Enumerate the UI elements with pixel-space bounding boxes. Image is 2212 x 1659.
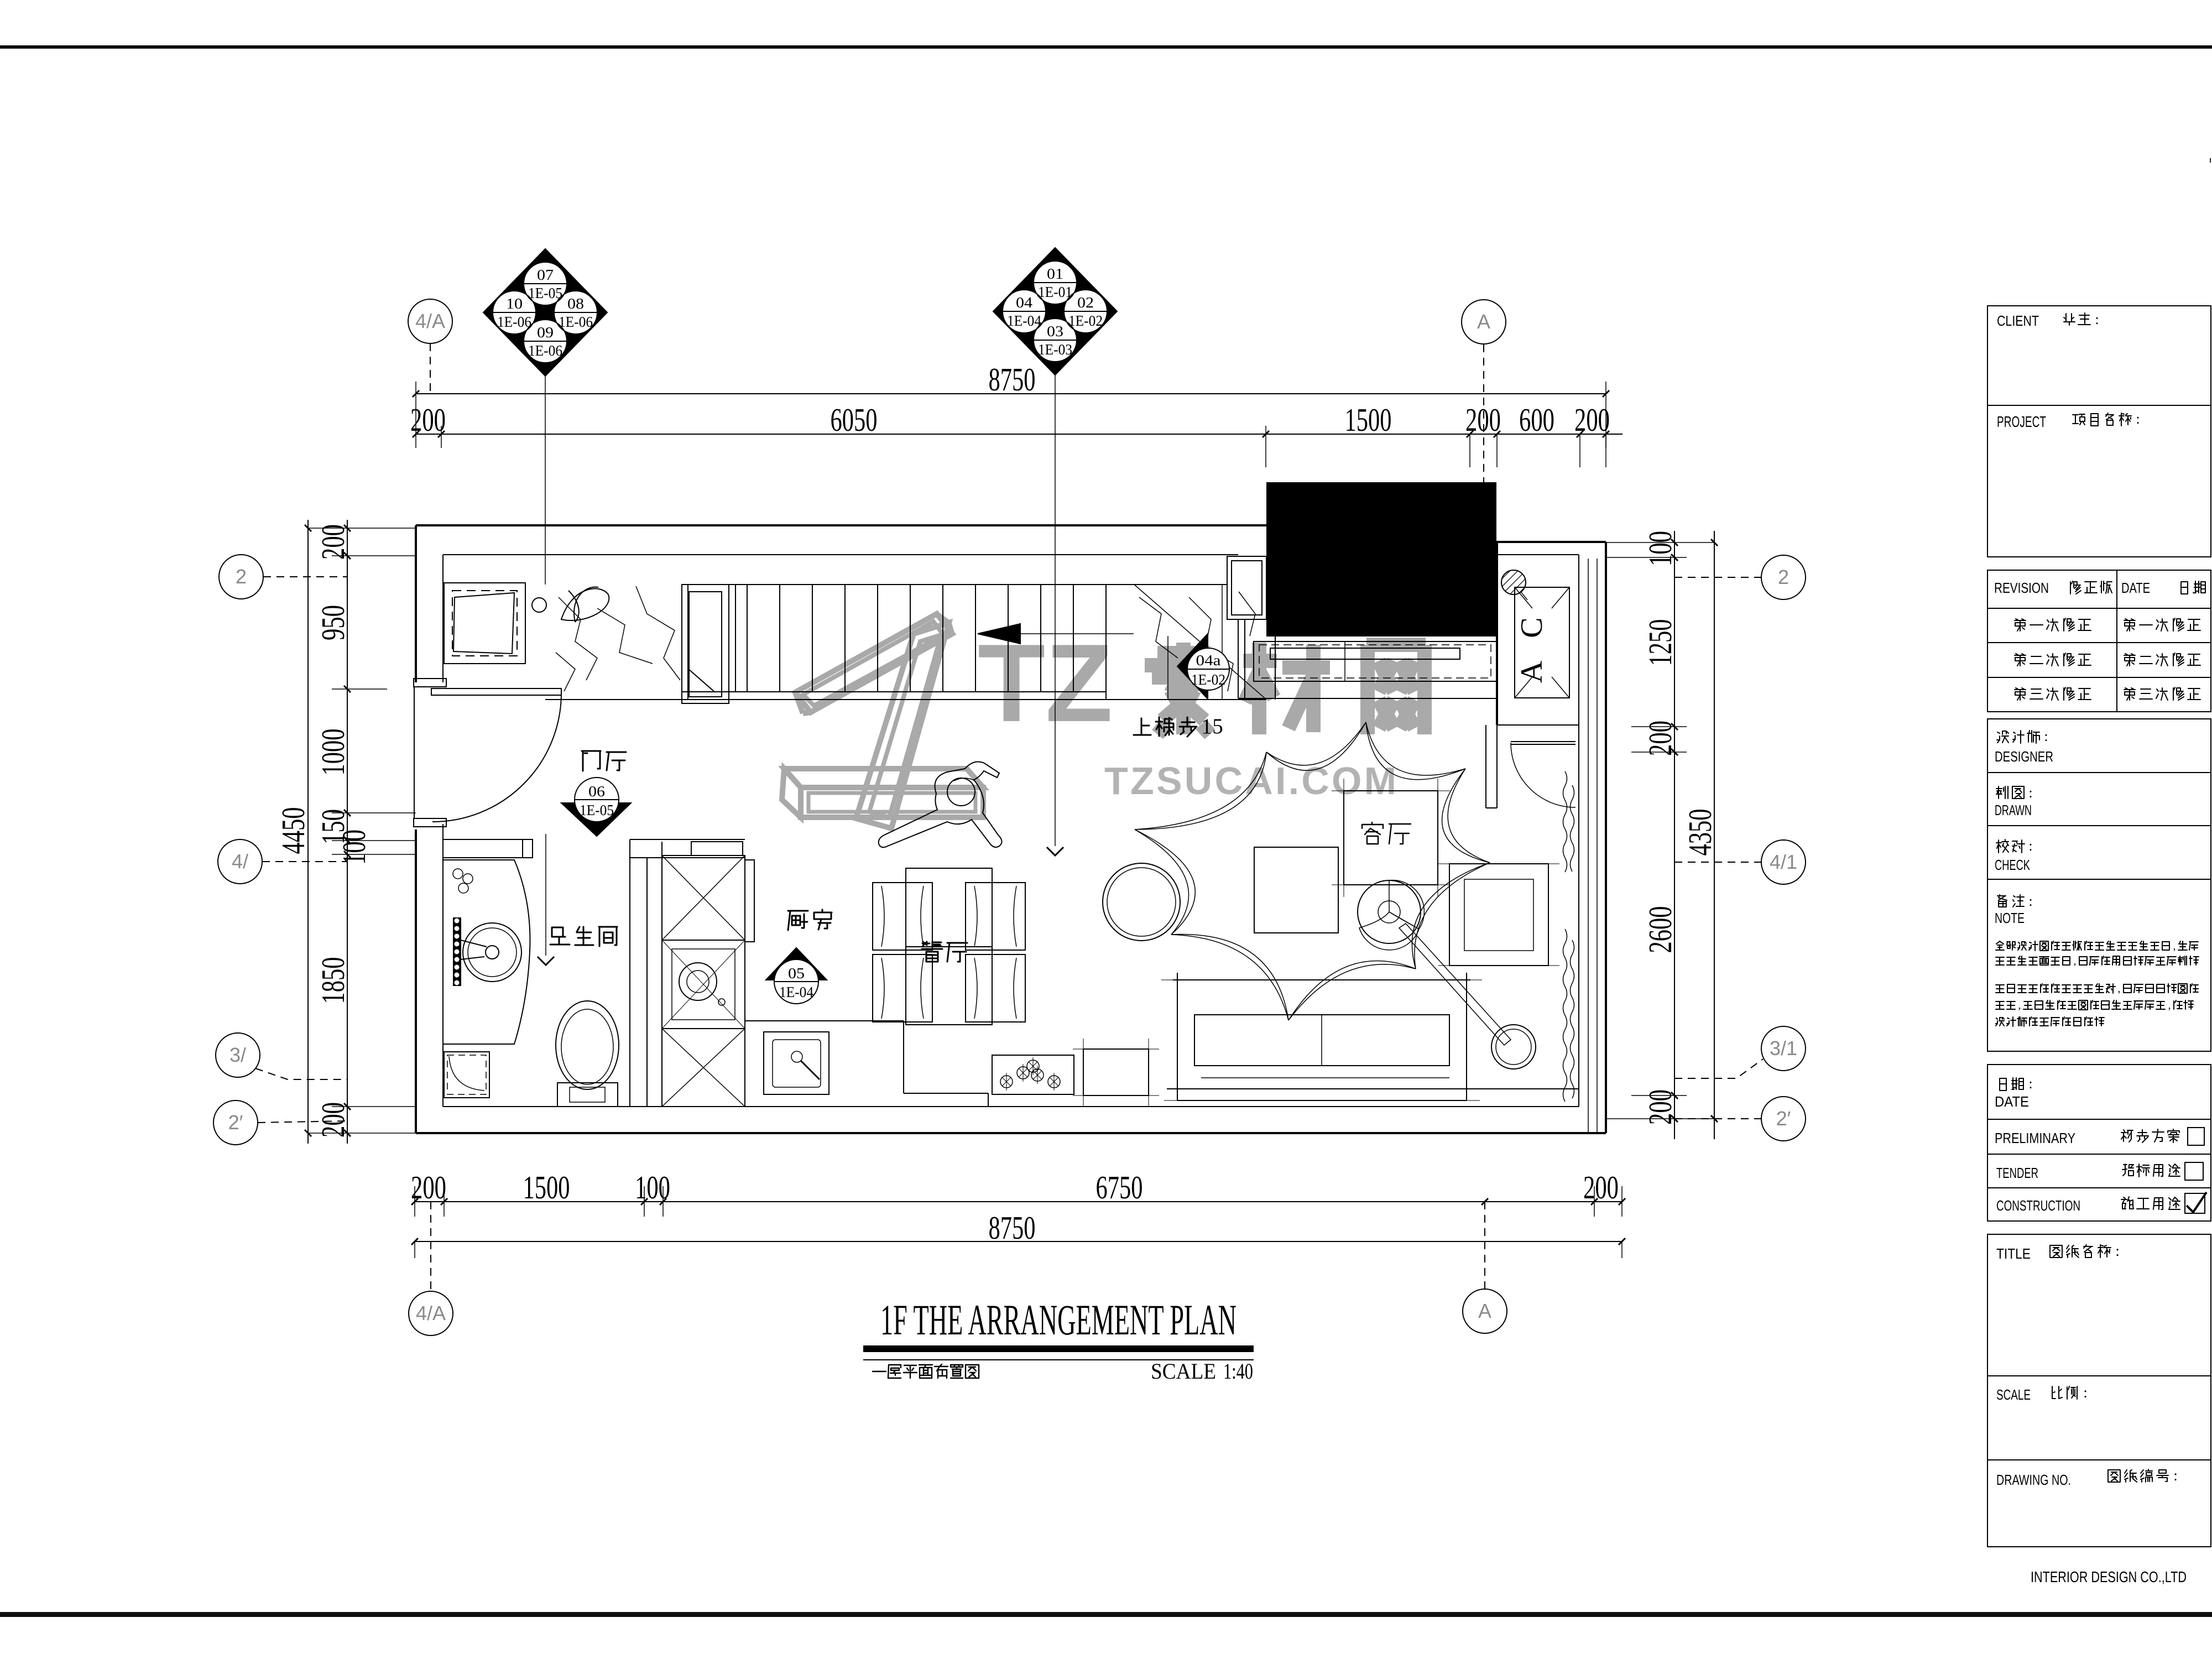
svg-text:2600: 2600 <box>1642 906 1678 953</box>
svg-text:4/A: 4/A <box>416 1302 446 1324</box>
svg-text:2: 2 <box>236 565 247 588</box>
svg-text:2′: 2′ <box>1776 1107 1791 1130</box>
svg-text:SCALE: SCALE <box>1151 1359 1216 1384</box>
svg-text::: : <box>2173 1467 2178 1484</box>
svg-text:NOTE: NOTE <box>1995 910 2025 926</box>
svg-text:,: , <box>2118 983 2121 995</box>
svg-text:3/: 3/ <box>229 1044 246 1066</box>
svg-text:200: 200 <box>1465 401 1501 438</box>
svg-text:DATE: DATE <box>1995 1093 2029 1110</box>
svg-text:DRAWN: DRAWN <box>1995 802 2032 818</box>
svg-text:09: 09 <box>537 324 554 341</box>
svg-text::: : <box>2028 838 2032 854</box>
svg-text:02: 02 <box>1077 294 1094 311</box>
svg-text:1500: 1500 <box>1345 401 1392 438</box>
svg-text:A: A <box>1478 1300 1491 1322</box>
svg-text:DATE: DATE <box>2121 580 2150 596</box>
svg-text::: : <box>2028 785 2032 801</box>
svg-text:,: , <box>2168 999 2171 1011</box>
svg-text:200: 200 <box>315 524 351 560</box>
svg-text:CLIENT: CLIENT <box>1997 312 2039 329</box>
svg-text:10: 10 <box>506 295 523 312</box>
svg-text:C: C <box>1515 617 1549 638</box>
svg-text:INTERIOR DESIGN CO.,LTD: INTERIOR DESIGN CO.,LTD <box>2031 1568 2187 1585</box>
svg-text::: : <box>2095 311 2099 327</box>
svg-text:1F THE ARRANGEMENT PLAN: 1F THE ARRANGEMENT PLAN <box>880 1296 1237 1344</box>
svg-text::: : <box>2044 728 2048 744</box>
svg-text:03: 03 <box>1047 323 1063 340</box>
svg-text:A: A <box>1515 660 1549 683</box>
svg-text:A: A <box>1477 310 1490 333</box>
svg-text:4/A: 4/A <box>415 310 445 332</box>
svg-text:,: , <box>2074 955 2077 967</box>
svg-text:CHECK: CHECK <box>1995 857 2030 873</box>
svg-text:DESIGNER: DESIGNER <box>1995 748 2053 765</box>
svg-text:1: 1 <box>1201 714 1212 738</box>
svg-text:PRELIMINARY: PRELIMINARY <box>1995 1130 2075 1146</box>
svg-text::: : <box>2028 893 2032 909</box>
svg-text:200: 200 <box>411 1169 446 1206</box>
svg-text:SCALE: SCALE <box>1996 1386 2031 1403</box>
svg-text:4/: 4/ <box>232 850 248 873</box>
svg-text:1:40: 1:40 <box>1223 1359 1253 1384</box>
svg-text:6750: 6750 <box>1096 1169 1143 1206</box>
svg-text:TZ: TZ <box>978 622 1113 745</box>
svg-text:2′: 2′ <box>228 1111 243 1134</box>
svg-text:5: 5 <box>1212 714 1223 738</box>
svg-text::: : <box>2083 1384 2088 1401</box>
svg-text:07: 07 <box>537 267 554 283</box>
svg-text:1E-05: 1E-05 <box>580 802 614 818</box>
svg-text:4450: 4450 <box>275 807 311 854</box>
svg-text:06: 06 <box>588 783 605 800</box>
svg-text:1E-06: 1E-06 <box>497 314 531 330</box>
svg-text:200: 200 <box>1642 721 1678 756</box>
svg-text:2: 2 <box>1778 566 1789 588</box>
svg-text:04: 04 <box>1016 294 1033 311</box>
svg-text:8750: 8750 <box>989 361 1036 398</box>
svg-text:600: 600 <box>1519 401 1554 438</box>
svg-text:1E-01: 1E-01 <box>1038 284 1072 300</box>
svg-text:08: 08 <box>567 295 584 312</box>
svg-text:CONSTRUCTION: CONSTRUCTION <box>1996 1197 2080 1214</box>
svg-text:100: 100 <box>336 830 372 865</box>
svg-text:100: 100 <box>1642 531 1678 566</box>
svg-text:200: 200 <box>315 1102 351 1138</box>
svg-text:PROJECT: PROJECT <box>1997 413 2046 430</box>
svg-text:01: 01 <box>1047 265 1063 282</box>
svg-text:200: 200 <box>1583 1169 1619 1206</box>
svg-text:1E-06: 1E-06 <box>559 314 593 330</box>
svg-text:1850: 1850 <box>315 957 351 1004</box>
svg-text:TITLE: TITLE <box>1996 1245 2031 1262</box>
svg-text:TENDER: TENDER <box>1996 1165 2038 1181</box>
svg-text:1E-02: 1E-02 <box>1068 312 1103 329</box>
svg-text:1E-04: 1E-04 <box>779 984 813 1000</box>
svg-text:1500: 1500 <box>523 1169 570 1206</box>
svg-text:4/1: 4/1 <box>1770 851 1797 873</box>
svg-text:1000: 1000 <box>315 729 351 776</box>
svg-text::: : <box>2136 411 2140 427</box>
svg-text:8750: 8750 <box>989 1209 1036 1246</box>
svg-text:,: , <box>2018 999 2021 1011</box>
svg-text:6050: 6050 <box>831 401 878 438</box>
svg-text:950: 950 <box>315 605 351 640</box>
svg-text:REVISION: REVISION <box>1994 580 2049 596</box>
svg-text:4350: 4350 <box>1682 809 1718 856</box>
svg-text::: : <box>2115 1243 2120 1259</box>
svg-text:1E-06: 1E-06 <box>528 342 562 359</box>
svg-text:DRAWING NO.: DRAWING NO. <box>1996 1472 2071 1488</box>
svg-text:05: 05 <box>788 965 805 982</box>
svg-text:1E-04: 1E-04 <box>1007 312 1041 329</box>
svg-text::: : <box>2028 1076 2032 1092</box>
svg-text:1250: 1250 <box>1642 619 1678 666</box>
svg-text:100: 100 <box>635 1169 670 1206</box>
svg-text:1E-03: 1E-03 <box>1038 341 1072 358</box>
svg-text:04a: 04a <box>1196 652 1221 669</box>
svg-text:200: 200 <box>1574 401 1610 438</box>
svg-text:,: , <box>2173 940 2176 952</box>
svg-text:1E-02: 1E-02 <box>1191 671 1225 688</box>
svg-text:TZSUCAI.COM: TZSUCAI.COM <box>1104 759 1396 802</box>
svg-text:3/1: 3/1 <box>1770 1037 1797 1060</box>
svg-text:1E-05: 1E-05 <box>528 285 562 301</box>
svg-text:200: 200 <box>1642 1089 1678 1125</box>
